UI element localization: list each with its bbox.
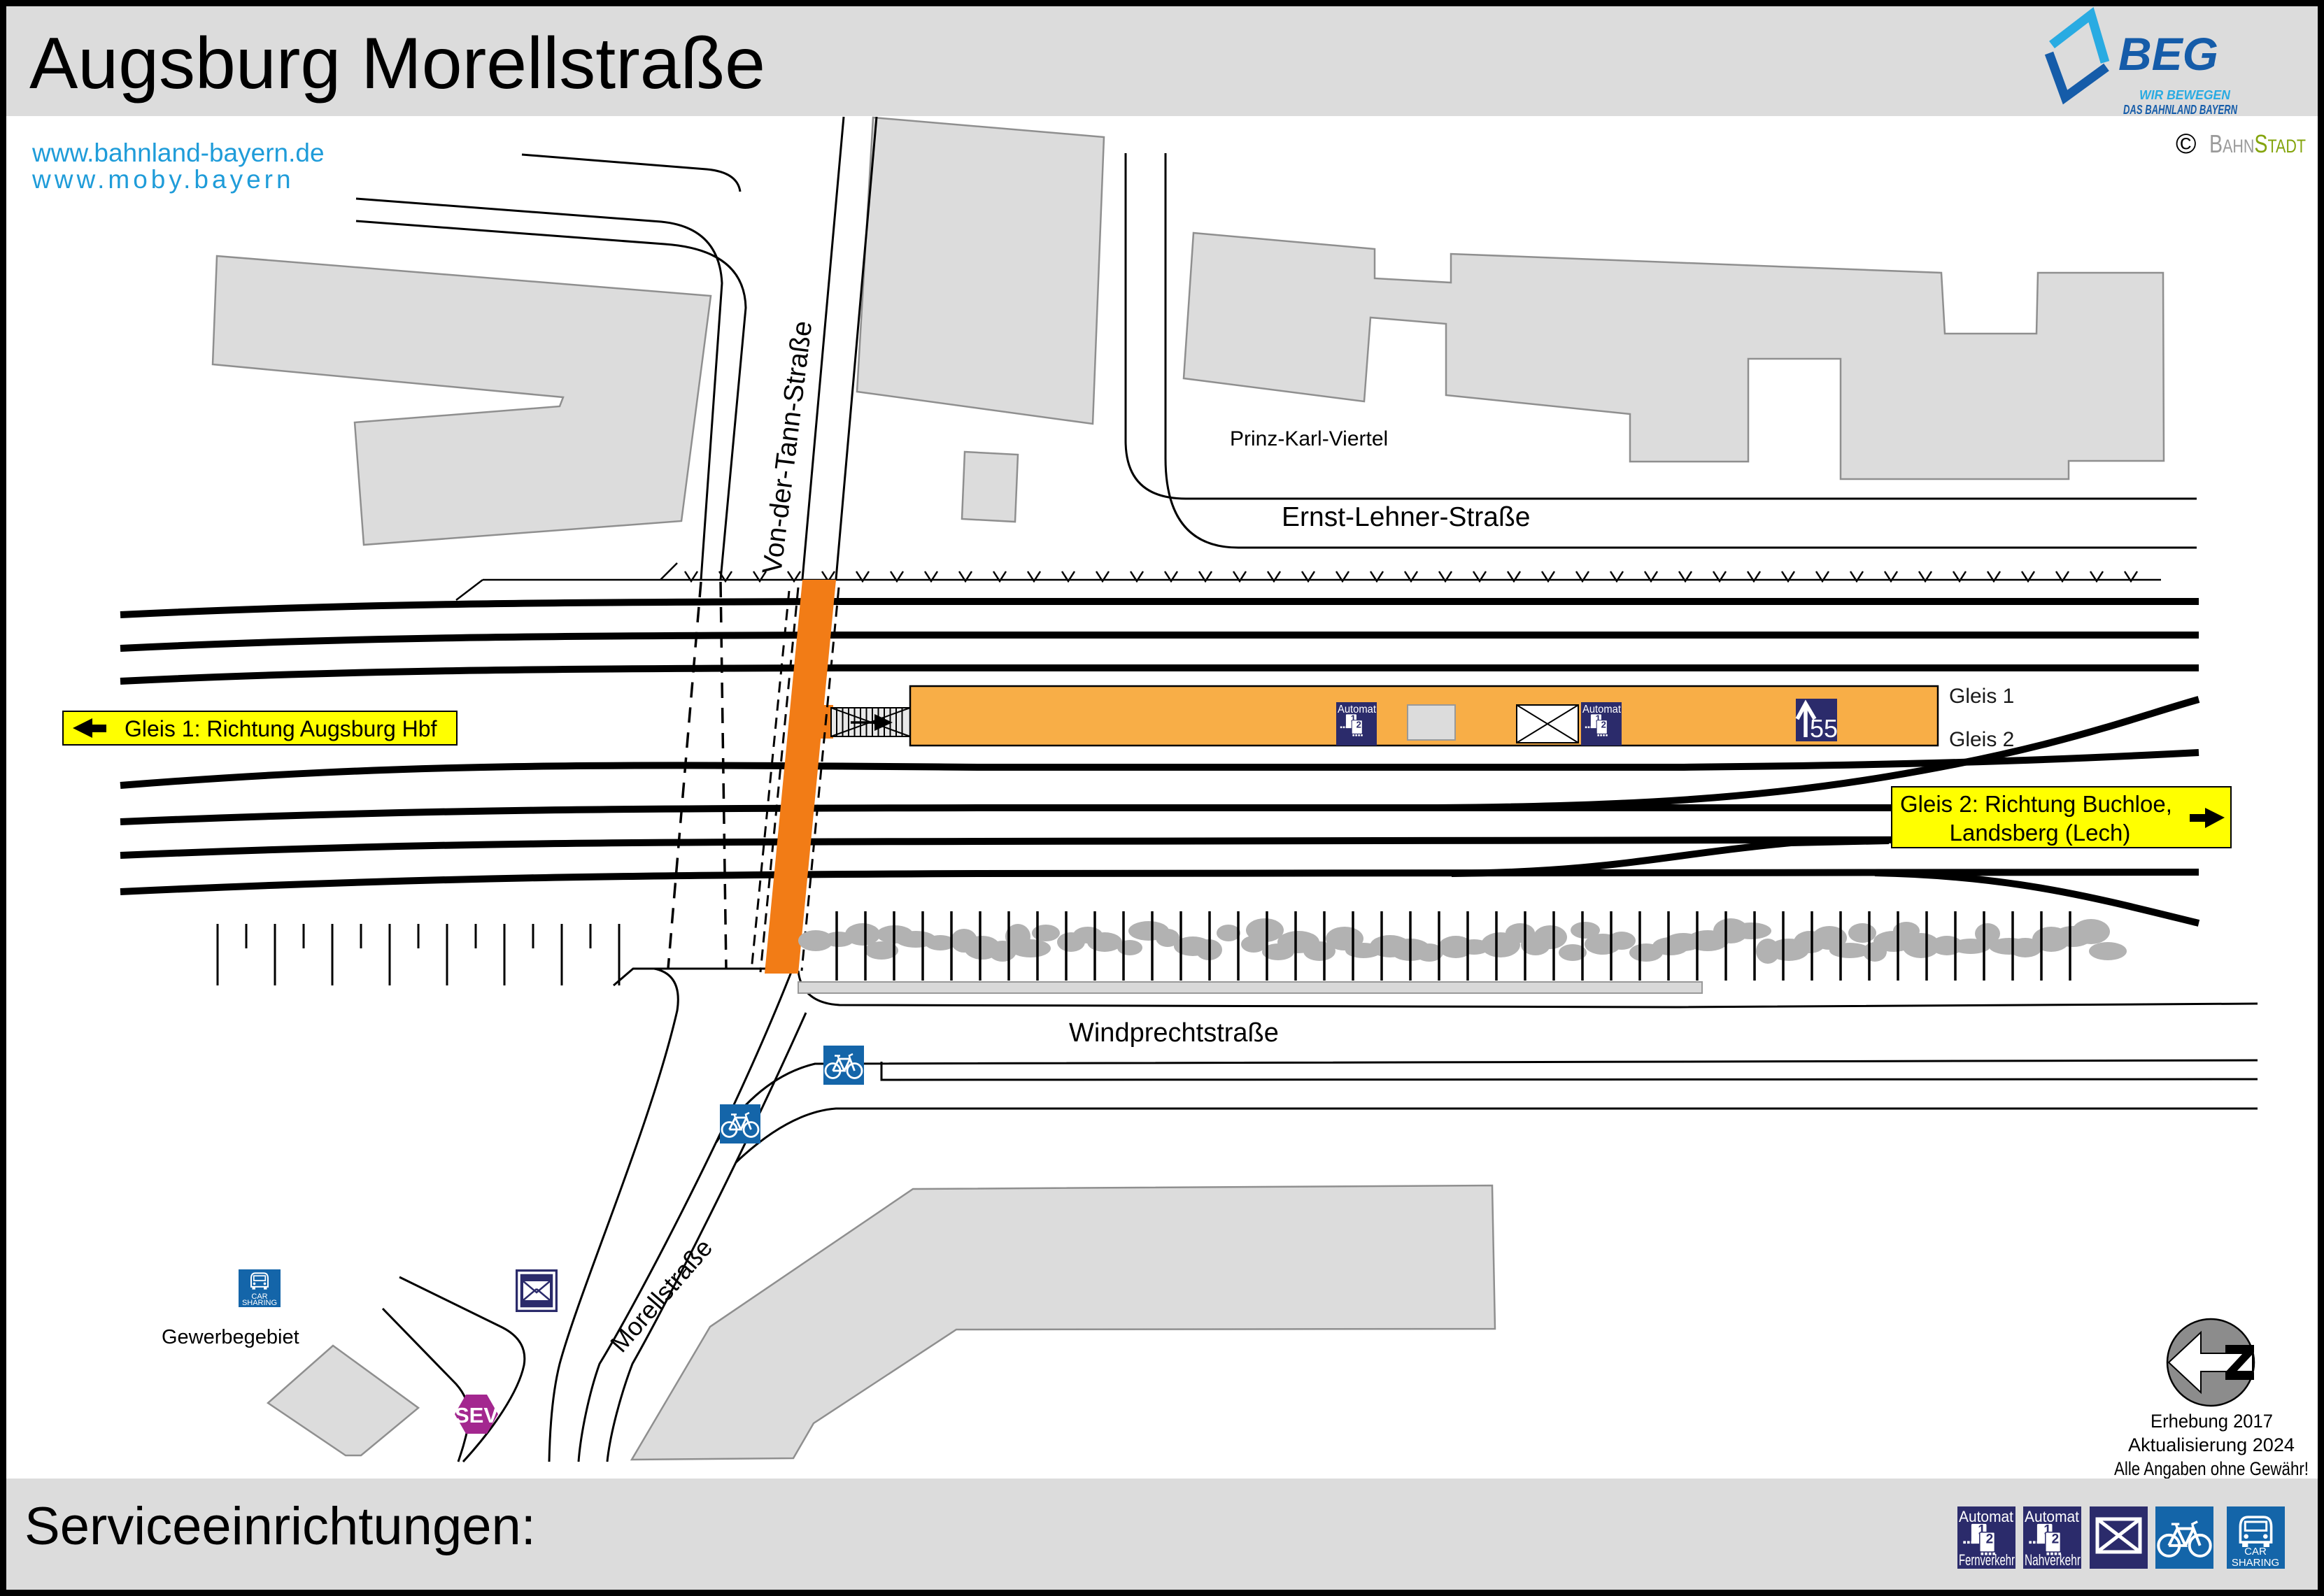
svg-text:Automat: Automat bbox=[2025, 1508, 2079, 1525]
svg-text:Von-der-Tann-Straße: Von-der-Tann-Straße bbox=[757, 319, 818, 576]
svg-text:Nahverkehr: Nahverkehr bbox=[2025, 1551, 2081, 1569]
svg-text:Windprechtstraße: Windprechtstraße bbox=[1069, 1018, 1279, 1048]
svg-text:CAR: CAR bbox=[2244, 1546, 2267, 1558]
svg-text:SEV: SEV bbox=[455, 1403, 498, 1427]
svg-text:www.bahnland-bayern.de: www.bahnland-bayern.de bbox=[31, 138, 325, 167]
svg-text:Erhebung 2017: Erhebung 2017 bbox=[2151, 1411, 2273, 1432]
svg-text:©: © bbox=[2176, 129, 2196, 159]
svg-text:2: 2 bbox=[1601, 720, 1606, 730]
svg-text:Gewerbegebiet: Gewerbegebiet bbox=[162, 1326, 299, 1348]
svg-text:Ernst-Lehner-Straße: Ernst-Lehner-Straße bbox=[1282, 502, 1530, 532]
svg-text:SHARING: SHARING bbox=[2232, 1557, 2279, 1569]
svg-text:BAHNSTADT: BAHNSTADT bbox=[2209, 129, 2306, 158]
svg-text:SHARING: SHARING bbox=[242, 1299, 277, 1307]
svg-text:Gleis 1: Richtung Augsburg Hbf: Gleis 1: Richtung Augsburg Hbf bbox=[125, 716, 437, 741]
svg-text:Prinz-Karl-Viertel: Prinz-Karl-Viertel bbox=[1230, 427, 1388, 450]
svg-text:Landsberg (Lech): Landsberg (Lech) bbox=[1950, 820, 2131, 846]
svg-text:DAS BAHNLAND BAYERN: DAS BAHNLAND BAYERN bbox=[2123, 103, 2238, 117]
svg-text:Aktualisierung 2024: Aktualisierung 2024 bbox=[2128, 1434, 2295, 1455]
svg-text:Gleis 1: Gleis 1 bbox=[1949, 685, 2014, 708]
svg-text:Automat: Automat bbox=[1582, 704, 1622, 715]
svg-text:2: 2 bbox=[1356, 720, 1361, 730]
svg-text:Gleis 2: Gleis 2 bbox=[1949, 728, 2014, 751]
svg-text:2: 2 bbox=[1986, 1532, 1994, 1546]
svg-text:2: 2 bbox=[2052, 1532, 2060, 1546]
svg-text:BEG: BEG bbox=[2118, 28, 2218, 80]
svg-text:www.moby.bayern: www.moby.bayern bbox=[31, 165, 295, 194]
svg-text:Augsburg Morellstraße: Augsburg Morellstraße bbox=[29, 23, 765, 104]
svg-text:Automat: Automat bbox=[1338, 704, 1377, 715]
svg-text:WIR BEWEGEN: WIR BEWEGEN bbox=[2139, 88, 2231, 102]
svg-text:55: 55 bbox=[1810, 714, 1838, 743]
svg-text:Alle Angaben ohne Gewähr!: Alle Angaben ohne Gewähr! bbox=[2114, 1458, 2309, 1479]
svg-text:Automat: Automat bbox=[1959, 1508, 2013, 1525]
svg-text:Fernverkehr: Fernverkehr bbox=[1959, 1551, 2015, 1569]
svg-text:Gleis 2: Richtung Buchloe,: Gleis 2: Richtung Buchloe, bbox=[1900, 791, 2172, 817]
svg-text:Serviceeinrichtungen:: Serviceeinrichtungen: bbox=[24, 1497, 536, 1556]
